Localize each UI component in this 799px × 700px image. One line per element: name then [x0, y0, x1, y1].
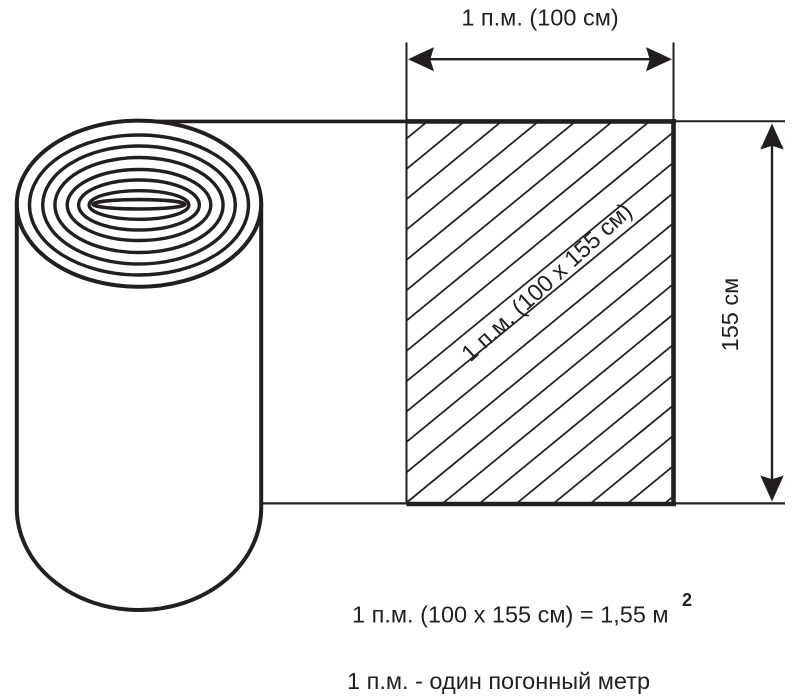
svg-text:2: 2 — [682, 590, 692, 610]
svg-text:1 п.м. (100 х 155 см) = 1,55 м: 1 п.м. (100 х 155 см) = 1,55 м — [352, 602, 669, 628]
svg-text:155 см: 155 см — [717, 278, 743, 352]
svg-text:1 п.м. (100 см): 1 п.м. (100 см) — [461, 5, 618, 31]
svg-text:1 п.м. - один погонный метр: 1 п.м. - один погонный метр — [347, 668, 650, 694]
